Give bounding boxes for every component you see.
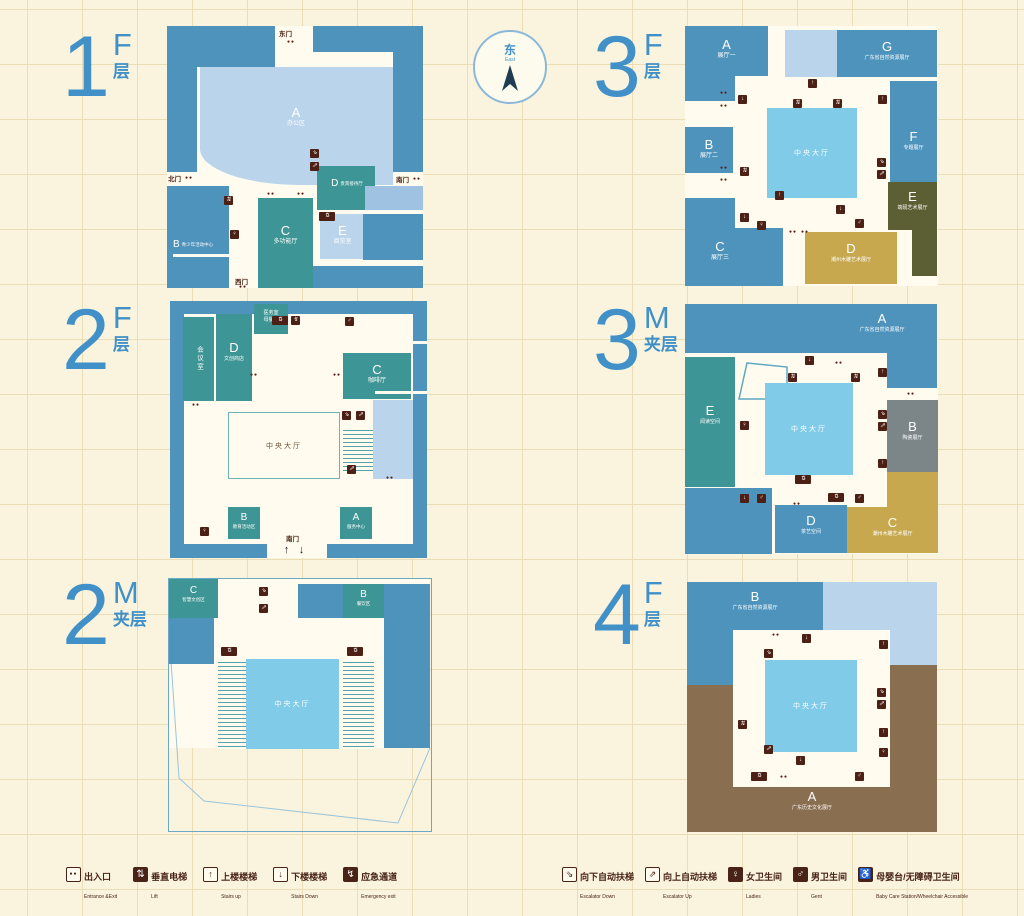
- entrance-dots-icon: ●●: [192, 403, 200, 408]
- compass-east: 东 East: [473, 30, 547, 104]
- stairs-down-icon: ↓: [740, 494, 749, 503]
- floor-unit: F: [113, 303, 132, 333]
- escalator-down-icon: ⇘: [310, 149, 319, 158]
- stairs-up-icon: ↑: [878, 95, 887, 104]
- stairs-up-icon: ↑: [808, 79, 817, 88]
- door-label-east: 东门: [279, 28, 292, 38]
- room-b-block: [228, 507, 260, 539]
- room-block: [384, 584, 430, 748]
- floor-number: 2: [62, 303, 110, 377]
- floor-unit: F: [644, 30, 663, 60]
- emergency-exit-icon: ↯: [343, 867, 358, 882]
- entrance-dots-icon: ●●: [250, 373, 258, 378]
- floor-number: 2: [62, 578, 110, 652]
- ladies-room-icon: ♀: [879, 748, 888, 757]
- floor-plan-1f: A 办公区 B 青少年活动中心 C 多功能厅 D 贵宾接待厅 E 阅览室 东门 …: [167, 26, 423, 288]
- floor-number: 3: [593, 30, 641, 104]
- legend-item-emergency: ↯ 应急通道Emergency exit: [343, 867, 397, 903]
- lift-icon: ⇅: [788, 373, 797, 382]
- meeting-room-label: 会议室: [183, 317, 214, 401]
- room-g-block: [837, 30, 937, 77]
- gents-room-icon: ♂: [855, 219, 864, 228]
- floor-unit-cn: 层: [644, 63, 663, 81]
- room-a-block: [823, 304, 937, 353]
- escalator-down-icon: ⇘: [342, 411, 351, 420]
- escalator-down-icon: ⇘: [562, 867, 577, 882]
- escalator-down-icon: ⇘: [877, 688, 886, 697]
- lift-icon: ⇅: [740, 167, 749, 176]
- lift-icon: ⇅: [851, 373, 860, 382]
- escalator-up-icon: ⇗: [877, 700, 886, 709]
- room-c-block: [169, 579, 218, 618]
- entrance-dots-icon: ●●: [267, 192, 275, 197]
- escalator-down-icon: ⇘: [878, 410, 887, 419]
- gents-room-icon: ♂: [793, 867, 808, 882]
- floor-plan-2m: C 智慧文创区 B 餐饮区 中央大厅 ⇘ ⇗ ⇅ ⇅: [168, 578, 432, 832]
- wall-block: [170, 301, 427, 314]
- entrance-dots-icon: ●●: [297, 192, 305, 197]
- floor-plan-2f: 会议室 D 文创商店 医务室 母婴室 C 咖啡厅 中央大厅 B 教育活动区 A …: [170, 301, 427, 558]
- room-block: [785, 30, 837, 77]
- room-block: [373, 400, 413, 479]
- floor-unit-cn: 夹层: [644, 336, 678, 354]
- floor-unit-cn: 夹层: [113, 611, 147, 629]
- room-block: [169, 618, 214, 664]
- ladies-room-icon: ♀: [728, 867, 743, 882]
- lift-icon: ⇅: [224, 196, 233, 205]
- ladies-room-icon: ♀: [200, 527, 209, 536]
- room-block: [393, 50, 423, 172]
- entrance-dots-icon: ●●: [789, 230, 797, 235]
- entrance-dots-icon: ●●: [720, 104, 728, 109]
- central-hall-block: 中央大厅: [765, 660, 857, 752]
- stairs-down-icon: ↓: [273, 867, 288, 882]
- room-b-block: [687, 582, 823, 630]
- lift-icon: ⇅: [751, 772, 767, 781]
- baby-care-accessible-icon: ♿: [858, 867, 873, 882]
- wall-block: [170, 544, 267, 558]
- room-block: [298, 584, 343, 618]
- floor-number: 4: [593, 578, 641, 652]
- door-label-north: 北门: [168, 173, 181, 183]
- room-d-block: [216, 314, 252, 401]
- room-block: [313, 266, 423, 288]
- entrance-dots-icon: ●●: [239, 285, 247, 290]
- legend-item-lift: ⇅ 垂直电梯Lift: [133, 867, 187, 903]
- room-b-block: [887, 400, 938, 472]
- escalator-up-icon: ⇗: [259, 604, 268, 613]
- legend-item-escalator-up: ⇗ 向上自动扶梯Escalator Up: [645, 867, 717, 903]
- entrance-dots-icon: ●●: [386, 476, 394, 481]
- stairs-up-icon: ↑: [878, 368, 887, 377]
- entrance-dots-icon: ●●: [185, 176, 193, 181]
- entrance-dots-icon: ●●: [907, 392, 915, 397]
- entrance-dots-icon: ●●: [801, 230, 809, 235]
- emergency-exit-slit: [343, 341, 427, 344]
- escalator-stripes: [343, 659, 374, 749]
- room-a-block: [340, 507, 372, 539]
- legend-item-escalator-down: ⇘ 向下自动扶梯Escalator Down: [562, 867, 634, 903]
- lift-icon: ⇅: [793, 99, 802, 108]
- central-hall-outline: 中央大厅: [228, 412, 340, 479]
- floor-label-1f: 1 F 层: [62, 30, 132, 104]
- legend-item-baby-care: ♿ 母婴台/无障碍卫生间Baby Care Station/Wheelchair…: [858, 867, 968, 903]
- lift-icon: ⇅: [347, 647, 363, 656]
- floor-unit: F: [644, 578, 663, 608]
- central-hall-block: 中央大厅: [765, 383, 853, 475]
- room-a-block: [685, 26, 768, 76]
- room-block: [890, 630, 937, 665]
- corridor-slit: [173, 254, 229, 257]
- legend-right: ⇘ 向下自动扶梯Escalator Down ⇗ 向上自动扶梯Escalator…: [562, 867, 968, 903]
- entrance-dots-icon: ●●: [835, 361, 843, 366]
- entrance-dots-icon: ●●: [772, 633, 780, 638]
- room-c-block: [685, 198, 735, 228]
- stairs-down-icon: ↓: [802, 634, 811, 643]
- lift-icon: ⇅: [833, 99, 842, 108]
- floor-label-3f: 3 F 层: [593, 30, 663, 104]
- floor-map-page: { "compass": {"cn": "东", "en": "East"}, …: [0, 0, 1024, 916]
- compass-needle-icon: [500, 65, 520, 91]
- legend-item-ladies: ♀ 女卫生间Ladies: [728, 867, 782, 903]
- gents-room-icon: ♂: [855, 494, 864, 503]
- room-block: [313, 26, 423, 52]
- stairs-up-icon: ↑: [878, 459, 887, 468]
- escalator-down-icon: ⇘: [877, 158, 886, 167]
- entrance-dots-icon: ●●: [720, 91, 728, 96]
- floor-unit-cn: 层: [113, 336, 132, 354]
- ladies-room-icon: ♀: [230, 230, 239, 239]
- door-label-south: 南门: [396, 174, 409, 184]
- room-c-block: [887, 472, 938, 507]
- door-label-south: 南门: [286, 533, 299, 543]
- room-a-block: [887, 353, 937, 388]
- escalator-up-icon: ⇗: [877, 170, 886, 179]
- floor-plan-3m: A 广东省自然资源展厅 E 阅读空间 中央大厅 B 陶瓷展厅 C 潮州木雕艺术展…: [685, 304, 938, 554]
- legend-item-stairs-up: ↑ 上楼楼梯Stairs up: [203, 867, 257, 903]
- floor-label-2f: 2 F 层: [62, 303, 132, 377]
- stairs-down-icon: ↓: [836, 205, 845, 214]
- lift-icon: ⇅: [738, 720, 747, 729]
- lift-icon: ⇅: [133, 867, 148, 882]
- entrance-dots-icon: ●●: [287, 40, 295, 45]
- floor-label-3m: 3 M 夹层: [593, 303, 678, 377]
- ladies-room-icon: ♀: [740, 421, 749, 430]
- wall-block: [170, 301, 184, 558]
- escalator-up-icon: ⇗: [645, 867, 660, 882]
- stairs-up-icon: ↑: [203, 867, 218, 882]
- escalator-up-icon: ⇗: [347, 465, 356, 474]
- room-e-block: [685, 357, 735, 487]
- room-e-block: [912, 230, 937, 276]
- entrance-dots-icon: ●●: [413, 177, 421, 182]
- entrance-dots-icon: ●●: [780, 775, 788, 780]
- gents-room-icon: ♂: [345, 317, 354, 326]
- exit-arrow-icon: ↓: [296, 544, 307, 556]
- floor-number: 3: [593, 303, 641, 377]
- escalator-stripes: [218, 659, 246, 749]
- stairs-down-icon: ↓: [738, 95, 747, 104]
- room-e-block: [888, 182, 937, 230]
- entry-arrow-icon: ↑: [281, 544, 292, 556]
- room-block: [363, 214, 423, 260]
- room-block: [685, 304, 823, 353]
- central-hall-block: 中央大厅: [767, 108, 857, 198]
- room-b-block: [343, 584, 384, 618]
- lift-icon: ⇅: [221, 647, 237, 656]
- lift-icon: ⇅: [272, 316, 288, 325]
- room-b-block: [687, 630, 733, 685]
- ladies-room-icon: ♀: [757, 221, 766, 230]
- compass-en: East: [505, 57, 515, 63]
- legend-left: ●● 出入口Entrance &Exit ⇅ 垂直电梯Lift ↑ 上楼楼梯St…: [66, 867, 397, 903]
- escalator-up-icon: ⇗: [764, 745, 773, 754]
- room-block: [167, 26, 197, 172]
- entrance-dots-icon: ●●: [793, 502, 801, 507]
- lift-icon: ⇅: [828, 493, 844, 502]
- room-block: [823, 582, 937, 630]
- floor-label-2m: 2 M 夹层: [62, 578, 147, 652]
- wall-block: [413, 301, 427, 558]
- wall-block: [327, 544, 427, 558]
- floor-number: 1: [62, 30, 110, 104]
- stairs-down-icon: ↓: [796, 756, 805, 765]
- floor-unit-cn: 层: [113, 63, 132, 81]
- room-c-block: [258, 198, 313, 288]
- stairs-up-icon: ↑: [879, 728, 888, 737]
- escalator-up-icon: ⇗: [878, 422, 887, 431]
- floor-label-4f: 4 F 层: [593, 578, 663, 652]
- legend-item-stairs-down: ↓ 下楼楼梯Stairs Down: [273, 867, 327, 903]
- stairs-up-icon: ↑: [879, 640, 888, 649]
- room-a-block: [685, 76, 735, 101]
- legend-item-entrance: ●● 出入口Entrance &Exit: [66, 867, 117, 903]
- room-c-block: [847, 507, 938, 553]
- escalator-down-icon: ⇘: [764, 649, 773, 658]
- room-d-block: [805, 232, 897, 284]
- escalator-up-icon: ⇗: [310, 162, 319, 171]
- gents-room-icon: ♂: [855, 772, 864, 781]
- stairs-down-icon: ↓: [805, 356, 814, 365]
- stairs-up-icon: ↑: [775, 191, 784, 200]
- escalator-down-icon: ⇘: [259, 587, 268, 596]
- entrance-dots-icon: ●●: [720, 178, 728, 183]
- room-b-block: [167, 186, 229, 288]
- room-f-block: [890, 81, 937, 186]
- floor-plan-3f: A 展厅一 G 广东省自然资源展厅 F 专题展厅 B 展厅二 中央大厅 E 端砚…: [685, 26, 938, 286]
- room-a-block: [890, 665, 937, 832]
- floor-unit: M: [113, 578, 147, 608]
- entrance-exit-icon: ●●: [66, 867, 81, 882]
- entrance-dots-icon: ●●: [720, 166, 728, 171]
- compass-cn: 东: [504, 44, 516, 57]
- floor-unit-cn: 层: [644, 611, 663, 629]
- escalator-up-icon: ⇗: [356, 411, 365, 420]
- gents-room-icon: ♂: [757, 494, 766, 503]
- legend-item-gents: ♂ 男卫生间Gent: [793, 867, 847, 903]
- stairs-down-icon: ↓: [740, 213, 749, 222]
- lift-icon: ⇅: [319, 212, 335, 221]
- entrance-dots-icon: ●●: [333, 373, 341, 378]
- room-c-block: [685, 228, 783, 286]
- room-d-block: [775, 505, 847, 553]
- floor-unit: F: [113, 30, 132, 60]
- central-hall-block: 中央大厅: [246, 659, 339, 749]
- floor-plan-4f: B 广东省自然资源展厅 A 广东历史文化展厅 中央大厅 ●● ↓ ↑ ⇘ ⇘ ⇗…: [687, 582, 937, 832]
- floor-unit: M: [644, 303, 678, 333]
- emergency-exit-slit: [375, 391, 427, 394]
- emergency-exit-icon: ↯: [291, 316, 300, 325]
- lift-icon: ⇅: [795, 475, 811, 484]
- room-block: [365, 186, 423, 210]
